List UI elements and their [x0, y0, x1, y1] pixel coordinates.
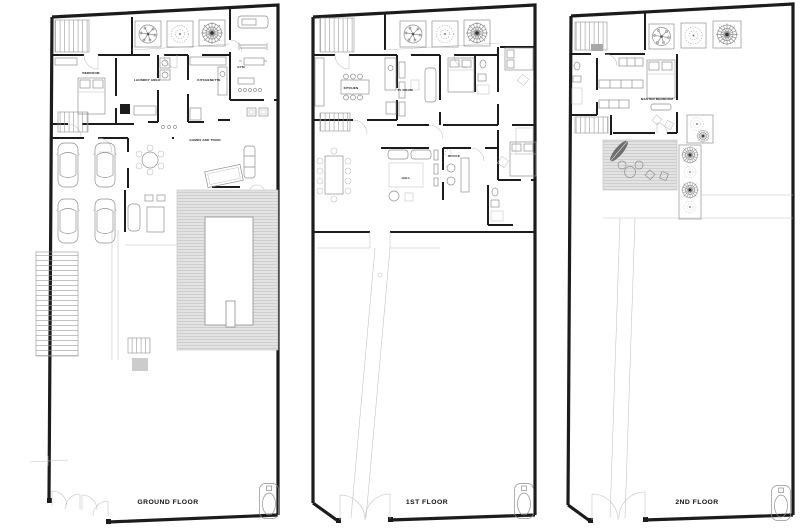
tree-icon-starburst	[680, 180, 701, 201]
kitchenette-counter	[190, 57, 227, 120]
planter-box	[400, 21, 426, 47]
floor-title: 2ND FLOOR	[675, 499, 718, 506]
planter-strip	[679, 115, 713, 219]
boundary-wall	[313, 5, 535, 523]
stairs-icon	[55, 20, 89, 52]
gate-swing	[592, 492, 645, 520]
planter-strip	[132, 20, 230, 50]
sofa-icon	[388, 150, 438, 201]
stairs-icon	[58, 112, 88, 132]
planter-box	[649, 24, 674, 49]
balcony	[591, 44, 603, 51]
car-icon	[93, 143, 116, 187]
car-icon	[56, 199, 79, 243]
path-walkway	[603, 195, 793, 518]
room-label-tv-room: TV ROOM	[397, 88, 413, 92]
closet-wardrobe	[599, 58, 643, 108]
room-label-kitchen: KITCHEN	[344, 86, 359, 90]
bathroom-fixtures	[477, 60, 489, 94]
room-label-office: OFFICE	[448, 154, 460, 158]
gate-swing	[340, 494, 390, 520]
dining-table-icon	[317, 148, 351, 202]
door-swing	[335, 55, 484, 161]
garage	[56, 143, 116, 243]
planter-strip	[649, 21, 741, 49]
bed-icon	[505, 48, 533, 86]
tree-icon-round	[684, 166, 696, 178]
marker-dot	[172, 137, 174, 139]
tree-icon-branched	[653, 28, 671, 46]
bed-icon	[55, 58, 105, 114]
bathroom-fixtures	[572, 62, 582, 104]
planter-box	[681, 23, 706, 48]
bed-icon	[448, 58, 474, 92]
floor-plan-second: MASTER BEDROOM 2ND FLOOR	[535, 0, 797, 530]
floor-title: 1ST FLOOR	[406, 499, 448, 506]
planter-box	[713, 21, 741, 48]
stairs-icon	[575, 117, 608, 133]
gym-equipment	[238, 16, 268, 92]
floor-plan-first: KITCHEN TV ROOM OFFICE HALL 1ST FLOOR	[293, 0, 555, 530]
room-label-laundry: LAUNDRY AREA	[134, 78, 161, 82]
bed-icon	[497, 142, 536, 176]
balcony	[516, 128, 533, 154]
tree-icon-branched	[139, 25, 157, 43]
room-label-games: GAMES AND TRAIN	[189, 138, 221, 142]
tree-icon-round	[172, 26, 189, 43]
tree-icon-starburst	[695, 128, 711, 144]
floor-title: GROUND FLOOR	[137, 499, 198, 506]
stairs-icon	[320, 18, 354, 52]
room-label-kitchenette: KITCHENETTE	[197, 78, 220, 82]
tree-icon-starburst	[714, 21, 740, 47]
tree-icon-round	[691, 118, 704, 131]
car-icon	[93, 199, 116, 243]
terrace-deck	[603, 138, 677, 190]
sliding-door-track	[162, 126, 177, 129]
washer-icon	[120, 58, 170, 115]
pool-table-icon	[205, 164, 244, 187]
room-label-hall: HALL	[402, 176, 411, 180]
car-icon	[56, 143, 79, 187]
room-label-master-bedroom: MASTER BEDROOM	[641, 97, 673, 101]
path-walkway	[317, 232, 440, 518]
bed-icon	[647, 60, 675, 130]
tree-icon-branched	[404, 25, 422, 43]
dining-table-icon	[136, 145, 164, 175]
bathroom-fixtures	[491, 188, 503, 221]
tree-icon-round	[437, 26, 454, 43]
planter-strip	[385, 20, 500, 50]
planter-box	[464, 20, 490, 46]
bathtub-icon	[260, 484, 279, 519]
planter-box	[432, 21, 458, 47]
planter-box	[135, 21, 161, 47]
planter-box	[199, 20, 225, 46]
tree-icon-round	[684, 201, 696, 213]
room-label-bedroom: BEDROOM	[82, 71, 99, 75]
floor-plan-ground: BEDROOM LAUNDRY AREA KITCHENETTE GYM GAM…	[28, 0, 290, 530]
tree-icon-round	[685, 27, 702, 44]
tree-icon-starburst	[199, 20, 225, 46]
lounge-furniture	[125, 195, 177, 245]
pool-deck	[177, 190, 278, 350]
tree-icon-starburst	[680, 145, 701, 166]
ramp-stairs	[36, 252, 78, 356]
room-label-gym: GYM	[237, 65, 245, 69]
sofa-icon	[244, 108, 268, 201]
planter-box	[167, 21, 193, 47]
gate-swing	[52, 491, 108, 516]
bathtub-icon	[515, 484, 534, 519]
pool-steps	[226, 301, 235, 327]
boundary-wall	[568, 4, 793, 523]
tree-icon-starburst	[464, 20, 490, 46]
stairs-icon	[320, 113, 350, 131]
